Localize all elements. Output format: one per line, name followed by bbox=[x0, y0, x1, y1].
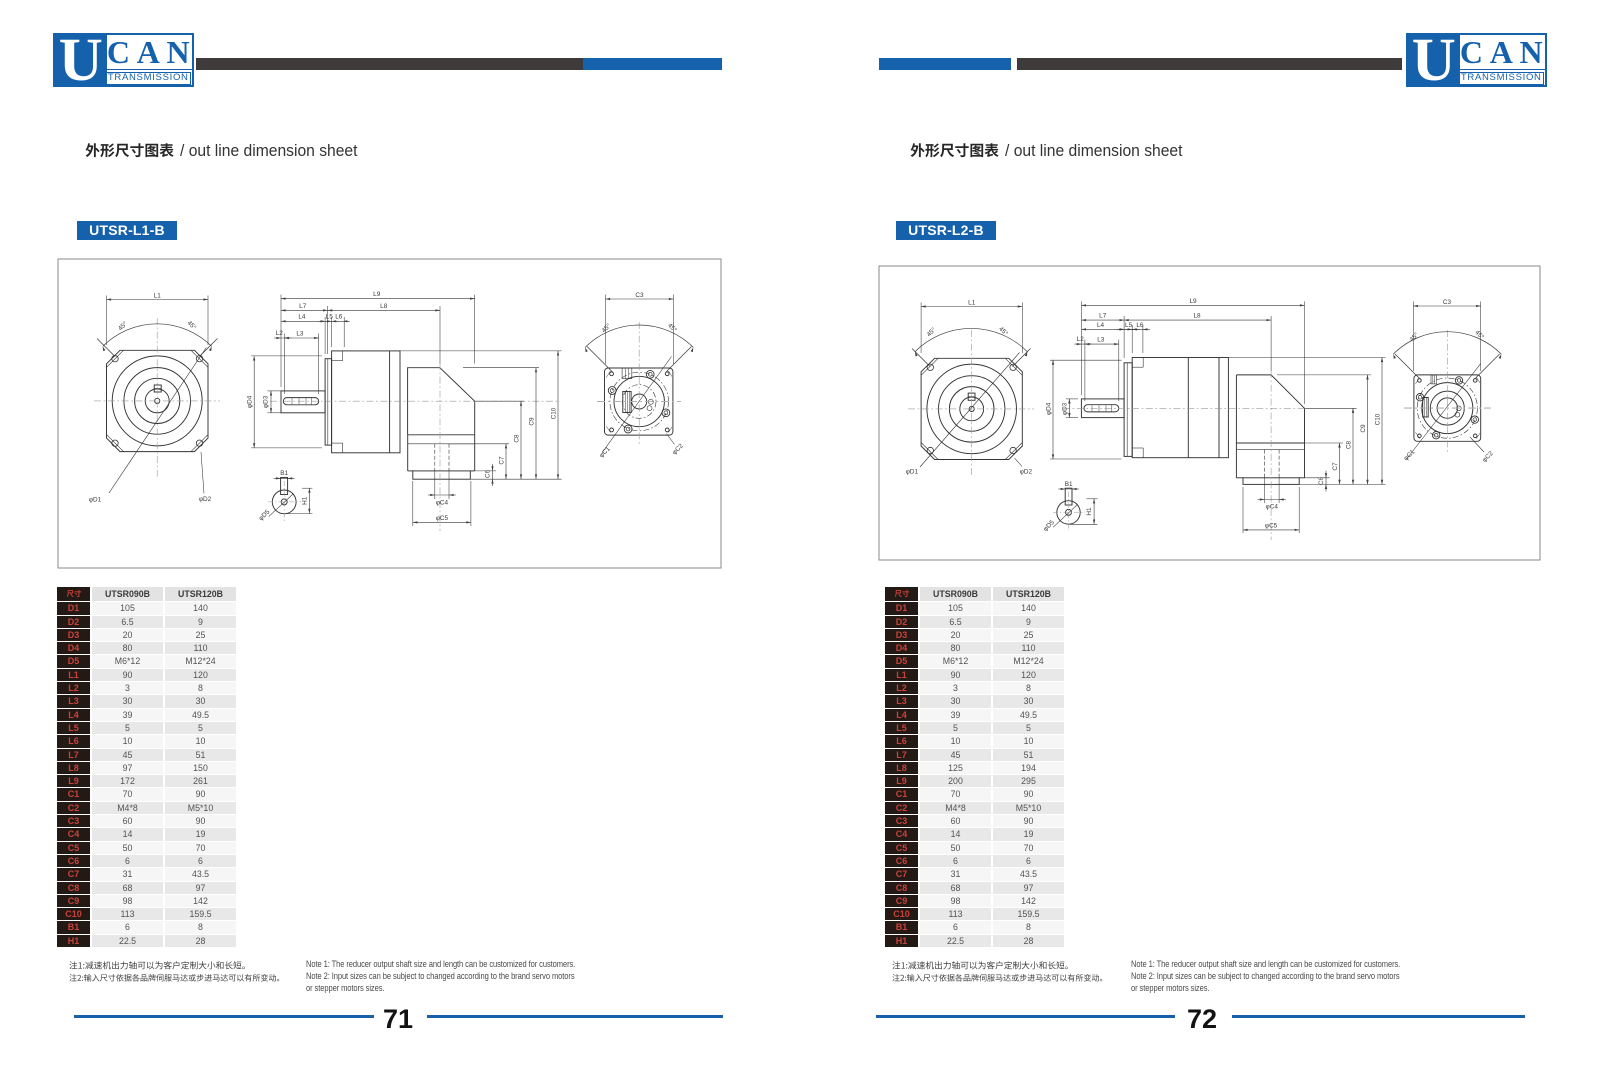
svg-text:L3: L3 bbox=[1097, 337, 1105, 344]
svg-text:C6: C6 bbox=[1318, 476, 1325, 485]
svg-text:L4: L4 bbox=[298, 314, 306, 321]
svg-text:C9: C9 bbox=[1360, 424, 1367, 433]
svg-text:L9: L9 bbox=[373, 291, 381, 298]
svg-text:L1: L1 bbox=[968, 299, 976, 306]
svg-text:L3: L3 bbox=[296, 330, 304, 337]
svg-text:C3: C3 bbox=[1443, 299, 1452, 306]
svg-text:L4: L4 bbox=[1097, 322, 1105, 329]
svg-text:H1: H1 bbox=[1086, 507, 1093, 516]
svg-text:/ out line dimension sheet: / out line dimension sheet bbox=[1005, 141, 1183, 160]
svg-text:C7: C7 bbox=[499, 456, 506, 465]
svg-text:L2: L2 bbox=[276, 330, 284, 337]
svg-text:L5: L5 bbox=[326, 314, 334, 321]
svg-text:φC5: φC5 bbox=[1265, 522, 1278, 529]
svg-text:L8: L8 bbox=[1193, 313, 1201, 320]
svg-text:C6: C6 bbox=[484, 469, 491, 478]
svg-text:C8: C8 bbox=[1346, 440, 1353, 449]
svg-text:φD3: φD3 bbox=[1062, 402, 1069, 415]
svg-text:L2: L2 bbox=[1077, 336, 1085, 343]
svg-text:C9: C9 bbox=[529, 417, 536, 426]
svg-text:C7: C7 bbox=[1332, 462, 1339, 471]
svg-text:φC5: φC5 bbox=[436, 515, 449, 522]
svg-text:φD4: φD4 bbox=[247, 395, 254, 408]
svg-text:C10: C10 bbox=[551, 407, 558, 419]
svg-text:L1: L1 bbox=[154, 292, 162, 299]
svg-text:φD1: φD1 bbox=[89, 497, 102, 504]
svg-text:L8: L8 bbox=[380, 303, 388, 310]
svg-text:L5: L5 bbox=[1125, 322, 1133, 329]
svg-text:B1: B1 bbox=[280, 470, 288, 477]
svg-text:C8: C8 bbox=[514, 434, 521, 443]
svg-text:L6: L6 bbox=[335, 314, 343, 321]
svg-text:B1: B1 bbox=[1065, 481, 1073, 488]
svg-text:H1: H1 bbox=[302, 496, 309, 505]
svg-text:C10: C10 bbox=[1375, 413, 1382, 425]
svg-text:L6: L6 bbox=[1136, 322, 1144, 329]
svg-text:φD2: φD2 bbox=[199, 496, 212, 503]
svg-text:φC4: φC4 bbox=[436, 500, 449, 507]
svg-text:L9: L9 bbox=[1189, 298, 1197, 305]
svg-text:φD4: φD4 bbox=[1045, 402, 1052, 415]
svg-text:C3: C3 bbox=[635, 292, 644, 299]
svg-text:φD1: φD1 bbox=[906, 469, 919, 476]
svg-text:φD2: φD2 bbox=[1020, 469, 1033, 476]
svg-text:L7: L7 bbox=[1099, 313, 1107, 320]
svg-text:φD3: φD3 bbox=[263, 395, 270, 408]
svg-text:φC4: φC4 bbox=[1266, 504, 1279, 511]
svg-text:L7: L7 bbox=[299, 303, 307, 310]
